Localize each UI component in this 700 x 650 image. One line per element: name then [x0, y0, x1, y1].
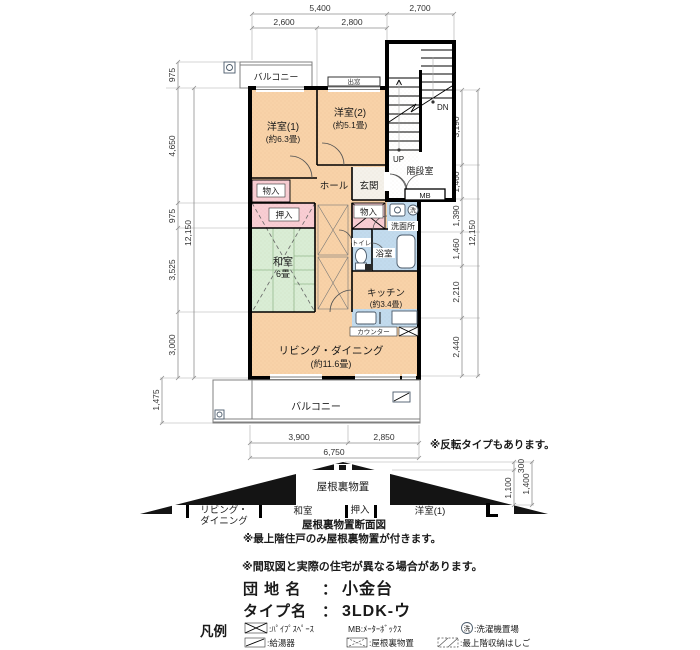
- legend: 凡例 :ﾊﾟｲﾌﾟｽﾍﾟｰｽ MB:ﾒｰﾀｰﾎﾞｯｸｽ 洗 :洗濯機置場 :給湯…: [200, 623, 531, 649]
- estate-separator: ：: [322, 581, 338, 598]
- roof-dim-mid: 1,100: [503, 477, 513, 499]
- bedroom1-size: (約6.3畳): [266, 134, 301, 144]
- info-block: ※間取図と実際の住宅が異なる場合があります。 団 地 名 ： 小金台 タイプ名 …: [242, 559, 483, 620]
- floorplan-page: 5,400 2,700 2,600 2,800 975 4,650 975 3,…: [0, 0, 700, 650]
- hall-label: ホール: [320, 181, 349, 192]
- pipe-space-icon: [399, 327, 418, 336]
- estate-value: 小金台: [342, 579, 393, 598]
- bedroom2-size: (約5.1畳): [333, 120, 368, 130]
- type-separator: ：: [322, 603, 338, 620]
- dim-bottom-total: 6,750: [323, 447, 345, 457]
- bay-window: 出窓: [328, 77, 380, 86]
- storage-center-label: 物入: [354, 205, 383, 218]
- dim-right-total: 12,150: [467, 220, 477, 246]
- bathtub: [397, 235, 415, 268]
- svg-text:トイレ: トイレ: [352, 240, 372, 247]
- dim-top-stair: 2,700: [409, 3, 431, 13]
- legend-meter-box: MB:ﾒｰﾀｰﾎﾞｯｸｽ: [348, 624, 401, 634]
- attic-label: 屋根裏物置: [317, 480, 370, 493]
- toilet-label: トイレ: [352, 238, 372, 247]
- dims-bottom: 3,900 2,850 6,750 ※反転タイプもあります。: [248, 425, 555, 460]
- svg-text:洗: 洗: [410, 207, 416, 215]
- dim-left-s0: 975: [167, 68, 177, 82]
- dim-left-s1: 4,650: [167, 135, 177, 157]
- dims-left: 975 4,650 975 3,525 3,000 12,150 1,475: [151, 60, 250, 425]
- svg-text:洗面所: 洗面所: [391, 221, 415, 231]
- svg-text:洗: 洗: [464, 624, 471, 633]
- dim-left-s2: 975: [167, 209, 177, 223]
- roof-label-living1: リビング・: [200, 504, 248, 516]
- legend-ladder: :最上階収納はしご: [460, 638, 531, 648]
- counter-label: カウンター: [357, 327, 390, 336]
- kitchen-size: (約3.4畳): [370, 299, 403, 309]
- dim-bottom-right: 2,850: [373, 432, 395, 442]
- dim-right-s2: 1,390: [451, 205, 461, 227]
- legend-title: 凡例: [200, 623, 227, 639]
- legend-washer-place: :洗濯機置場: [474, 624, 519, 634]
- dim-left-balcony: 1,475: [151, 389, 161, 411]
- roof-label-bedroom1: 洋室(1): [415, 505, 446, 517]
- dim-right-s3: 1,460: [451, 238, 461, 260]
- tatami-name: 和室: [273, 255, 293, 268]
- bath-label: 浴室: [373, 248, 395, 259]
- estate-label: 団 地 名: [243, 580, 301, 598]
- legend-pipe-space: :ﾊﾟｲﾌﾟｽﾍﾟｰｽ: [269, 624, 314, 634]
- type-value: 3LDK-ウ: [342, 602, 411, 620]
- dim-left-s3: 3,525: [167, 259, 177, 281]
- counter-label-box: カウンター: [350, 327, 397, 336]
- dim-left-s4: 3,000: [167, 334, 177, 356]
- dim-top-right: 2,800: [341, 17, 363, 27]
- roof-dim-top: 300: [516, 459, 526, 473]
- water-heater-icon-bottom: [393, 392, 410, 402]
- dim-top-left: 2,600: [273, 17, 295, 27]
- meter-box-label: MB: [419, 191, 430, 200]
- legend-washer-icon: 洗: [462, 623, 473, 634]
- kitchen-name: キッチン: [367, 288, 405, 299]
- washroom-label: 洗面所: [388, 221, 418, 231]
- dim-top-total: 5,400: [309, 3, 331, 13]
- svg-text:物入: 物入: [262, 186, 280, 196]
- svg-text:物入: 物入: [360, 207, 378, 217]
- bedroom1-name: 洋室(1): [267, 120, 299, 133]
- balcony-bottom: バルコニー: [213, 380, 420, 423]
- roof-section: 屋根裏物置 リビング・ ダイニング 和室 押入 洋室(1) 300 1,100 …: [140, 459, 548, 545]
- water-heater-icon-top: [224, 62, 235, 73]
- balcony-bottom-label: バルコニー: [291, 401, 341, 413]
- storage-left-label: 物入: [257, 184, 285, 197]
- legend-attic-storage-icon: [347, 638, 367, 647]
- roof-caption: 屋根裏物置断面図: [302, 518, 386, 531]
- note-reverse-type: ※反転タイプもあります。: [430, 438, 555, 451]
- balcony-top-label: バルコニー: [254, 72, 299, 82]
- dim-bottom-left: 3,900: [288, 432, 310, 442]
- roof-note: ※最上階住戸のみ屋根裏物置が付きます。: [243, 532, 441, 545]
- legend-pipe-space-icon: [245, 623, 267, 633]
- dim-right-s4: 2,210: [451, 281, 461, 303]
- dim-right-s5: 2,440: [451, 336, 461, 358]
- roof-dim-total: 1,400: [521, 473, 531, 495]
- living-name: リビング・ダイニング: [279, 344, 384, 357]
- tatami-size: 6畳: [276, 269, 290, 279]
- attic-hatch-icon: [339, 465, 346, 470]
- stair-dn-label: DN: [437, 103, 449, 112]
- legend-attic-storage: :屋根裏物置: [369, 638, 414, 648]
- washroom-sink: [390, 204, 405, 216]
- oshiire-label: 押入: [269, 208, 299, 221]
- svg-text:浴室: 浴室: [375, 249, 393, 259]
- floorplan-canvas: 5,400 2,700 2,600 2,800 975 4,650 975 3,…: [0, 0, 700, 650]
- roof-label-living2: ダイニング: [200, 515, 248, 527]
- bedroom2-name: 洋室(2): [334, 106, 366, 119]
- roof-label-oshiire: 押入: [350, 504, 370, 516]
- svg-text:押入: 押入: [275, 210, 293, 220]
- type-label: タイプ名: [243, 602, 307, 620]
- washing-machine-icon: 洗: [408, 205, 418, 215]
- entrance-label: 玄関: [359, 180, 378, 192]
- roof-label-tatami: 和室: [293, 505, 312, 517]
- meter-box: MB: [405, 189, 445, 200]
- dim-left-total: 12,150: [183, 220, 193, 246]
- legend-ladder-icon: [438, 638, 458, 647]
- bay-window-label: 出窓: [348, 77, 362, 86]
- legend-water-heater: :給湯器: [267, 638, 295, 648]
- disclaimer-note: ※間取図と実際の住宅が異なる場合があります。: [242, 559, 483, 573]
- legend-water-heater-icon: [245, 638, 265, 647]
- drain-icon: [215, 410, 224, 419]
- living-size: (約11.6畳): [311, 358, 352, 369]
